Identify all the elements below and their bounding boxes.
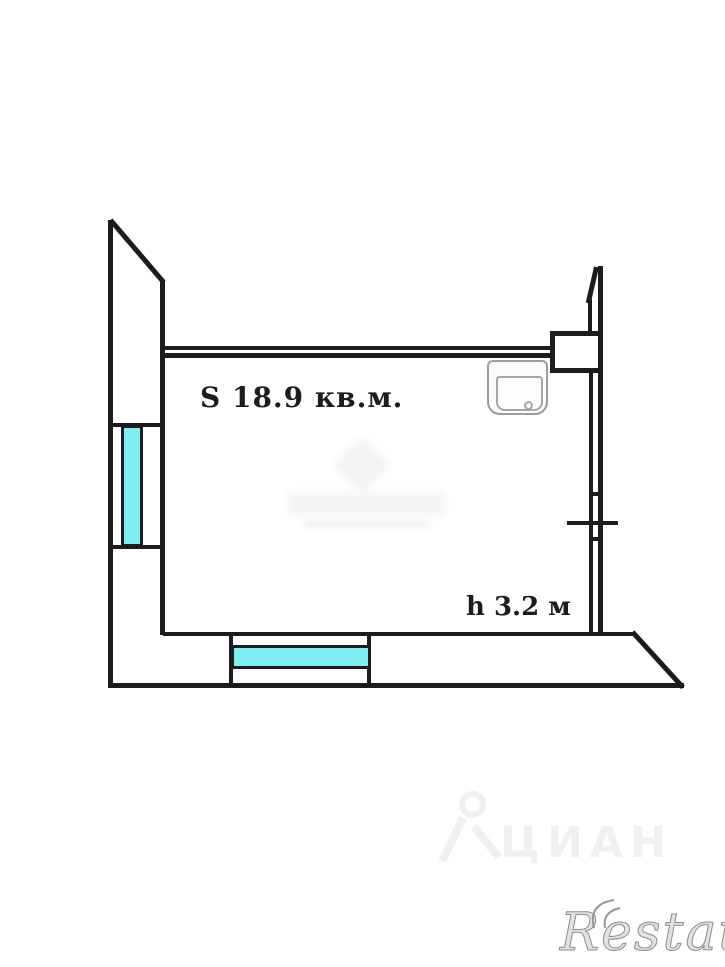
wall-top-line-2 (163, 353, 553, 358)
restate-watermark-text: Restate (560, 903, 725, 963)
wall-left-outer (108, 220, 113, 688)
wall-cross-line (567, 521, 618, 525)
wall-top-left-diagonal (109, 218, 166, 284)
wall-right-inner-lower (589, 370, 593, 635)
area-label: S 18.9 кв.м. (200, 381, 403, 414)
wall-tick-lower (589, 537, 603, 541)
wall-bottom-inner (163, 632, 634, 636)
cian-pin-leg (438, 816, 466, 863)
ceiling-height-label: h 3.2 м (466, 592, 571, 622)
wall-top-line-1 (163, 346, 553, 350)
sink-faucet-hole (524, 401, 533, 410)
cian-watermark-text: ЦИАН (500, 818, 673, 868)
duct-shaft-box (550, 331, 603, 373)
wall-tick-upper (589, 492, 603, 496)
window-bottom-glass (231, 645, 371, 669)
center-watermark-subtext-blur (303, 519, 431, 528)
floor-plan: S 18.9 кв.м. h 3.2 м ЦИАН Restate (0, 0, 725, 967)
sink-basin (496, 376, 543, 411)
wall-right-outer (598, 266, 603, 635)
center-watermark-text-blur (287, 492, 445, 516)
wall-right-inner-upper (588, 299, 592, 333)
cian-pin-icon (459, 791, 486, 818)
wall-bottom-right-diagonal (631, 630, 685, 689)
wall-bottom-outer (108, 683, 684, 688)
cian-pin-leg (471, 824, 502, 860)
sink-icon (487, 360, 548, 415)
center-watermark-logo (332, 435, 391, 494)
window-left-glass (121, 425, 143, 547)
wall-left-inner (160, 280, 165, 635)
